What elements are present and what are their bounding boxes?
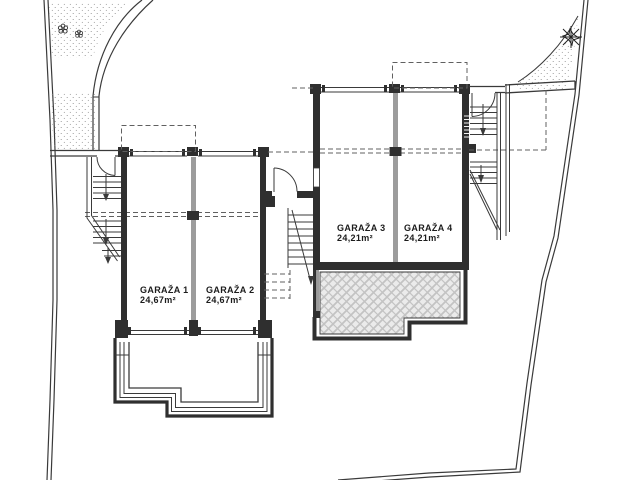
left-exterior-stair (50, 151, 121, 265)
garage-4-label: GARAŽA 4 (404, 222, 452, 233)
hatched-terrace (315, 268, 466, 339)
side-door-left (97, 157, 115, 176)
driveway-apron (115, 338, 272, 416)
roof-overhang-dashed-b (393, 63, 468, 89)
garage-2-area: 24,67m² (206, 295, 242, 305)
site-plan-drawing: GARAŽA 1 24,67m² GARAŽA 2 24,67m² GARAŽA… (0, 0, 640, 480)
garage-3-area: 24,21m² (337, 233, 373, 243)
garage-3-label: GARAŽA 3 (337, 222, 385, 233)
garage-block-b: GARAŽA 3 24,21m² GARAŽA 4 24,21m² (310, 84, 476, 270)
vegetation-area-topleft (49, 2, 128, 149)
garage-1-label: GARAŽA 1 (140, 284, 188, 295)
vegetation-area-topright (516, 16, 578, 90)
roof-overhang-dashed-a (122, 126, 196, 152)
garage-1-area: 24,67m² (140, 295, 176, 305)
right-exterior-stair (464, 84, 510, 240)
central-stair-vestibule (262, 152, 320, 318)
garage-2-label: GARAŽA 2 (206, 284, 254, 295)
garage-4-area: 24,21m² (404, 233, 440, 243)
tree-icon (560, 26, 582, 48)
